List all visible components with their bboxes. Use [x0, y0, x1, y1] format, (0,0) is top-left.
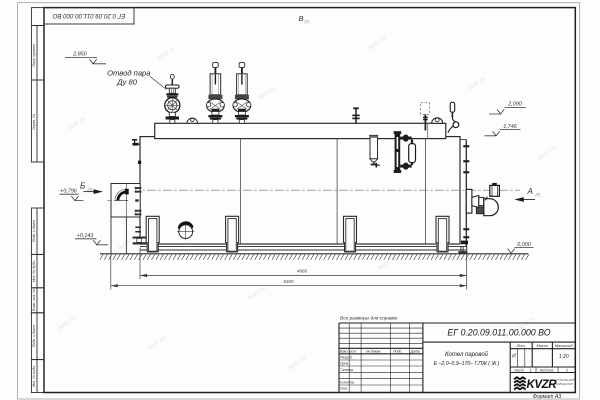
svg-text:5300: 5300 [283, 279, 294, 284]
svg-text:Ду 80: Ду 80 [116, 77, 138, 86]
svg-text:2,850: 2,850 [72, 52, 87, 58]
svg-text:Изм.Лист: Изм.Лист [340, 349, 357, 353]
svg-text:+0,143: +0,143 [77, 233, 94, 239]
svg-text:Формат А3: Формат А3 [533, 394, 561, 400]
svg-text:Лист: Лист [513, 368, 524, 372]
svg-text:Т.контр.: Т.контр. [340, 368, 354, 372]
svg-text:4860: 4860 [297, 269, 308, 274]
svg-text:KVZR: KVZR [527, 379, 558, 391]
svg-text:+0,796: +0,796 [60, 188, 77, 194]
svg-text:Дата: Дата [410, 349, 420, 353]
svg-text:ЗАВОД РЭП: ЗАВОД РЭП [556, 382, 574, 386]
svg-text:Справ. №: Справ. № [32, 114, 36, 130]
svg-text:(2): (2) [536, 192, 542, 197]
svg-text:Пров.: Пров. [340, 362, 349, 366]
svg-text:(2): (2) [88, 187, 94, 192]
svg-text:В: В [299, 14, 304, 23]
svg-text:Отвод пара: Отвод пара [107, 68, 150, 77]
svg-text:(2): (2) [305, 19, 309, 23]
svg-text:Инв. № подл.: Инв. № подл. [32, 365, 36, 387]
svg-text:Все размеры для справок: Все размеры для справок [340, 316, 398, 322]
svg-text:Е –2,0–0,9–170– Г.ПЖ ( Ж ): Е –2,0–0,9–170– Г.ПЖ ( Ж ) [434, 361, 500, 367]
svg-text:Инв. № дубл.: Инв. № дубл. [32, 260, 36, 282]
svg-text:1:20: 1:20 [559, 354, 569, 360]
svg-text:Масса: Масса [537, 344, 548, 348]
svg-text:№ докум.: № докум. [366, 349, 381, 353]
svg-text:Н.контр.: Н.контр. [340, 380, 355, 384]
svg-text:ЕГ 0.20.09.011.00.000 ВО: ЕГ 0.20.09.011.00.000 ВО [447, 327, 550, 337]
svg-text:Котел паровой: Котел паровой [445, 351, 489, 358]
svg-text:Лит.: Лит. [516, 344, 526, 348]
svg-text:Подп. и дата: Подп. и дата [32, 220, 36, 243]
svg-text:Взам. инв. №: Взам. инв. № [32, 289, 36, 311]
svg-text:1,746: 1,746 [503, 124, 517, 130]
svg-text:Масштаб: Масштаб [555, 344, 574, 348]
svg-text:И: И [512, 354, 516, 360]
svg-text:КОТЕЛЬНЫЙ: КОТЕЛЬНЫЙ [556, 378, 576, 382]
svg-text:Перв. примен.: Перв. примен. [32, 43, 36, 67]
svg-text:А: А [527, 187, 533, 196]
svg-text:Утв.: Утв. [340, 387, 348, 391]
svg-text:Б: Б [80, 182, 85, 191]
svg-text:ЕГ 0.20.09.011.00.000 ВО: ЕГ 0.20.09.011.00.000 ВО [53, 12, 126, 19]
svg-text:Разраб.: Разраб. [340, 355, 353, 359]
svg-text:Подп.: Подп. [393, 349, 402, 353]
svg-text:Листов: Листов [539, 368, 554, 372]
svg-text:2,090: 2,090 [507, 101, 522, 107]
svg-text:1: 1 [529, 368, 531, 372]
svg-text:Подп. и дата: Подп. и дата [32, 325, 36, 348]
